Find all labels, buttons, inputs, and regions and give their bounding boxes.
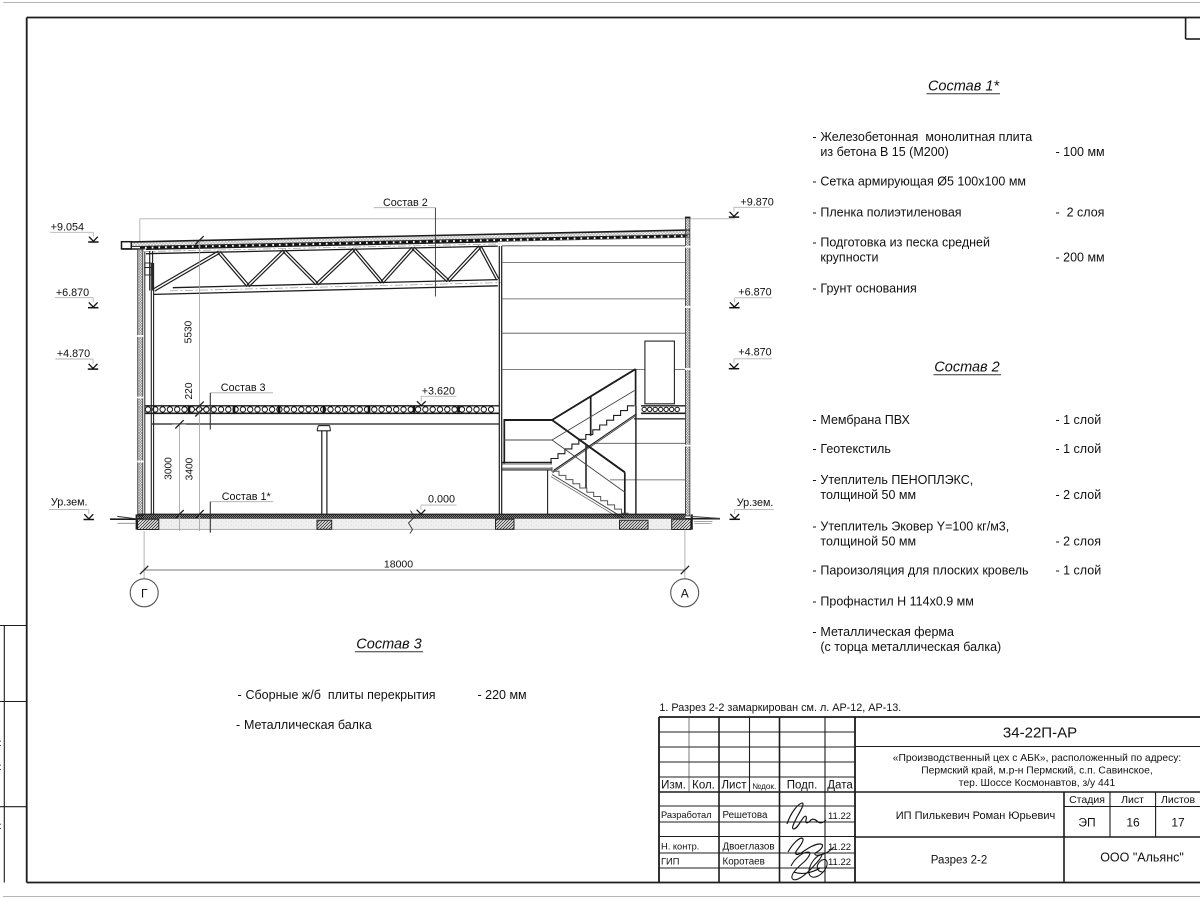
svg-text:Н. контр.: Н. контр. (661, 841, 699, 851)
svg-text:тер. Шоссе Космонавтов, з/у 44: тер. Шоссе Космонавтов, з/у 441 (959, 778, 1116, 789)
svg-text:Состав 2: Состав 2 (383, 197, 428, 209)
svg-text:Стадия: Стадия (1069, 794, 1105, 806)
svg-text:Разрез 2-2: Разрез 2-2 (931, 855, 987, 867)
svg-text:А: А (681, 586, 689, 600)
svg-text:толщиной 50 мм: толщиной 50 мм (820, 535, 916, 549)
svg-text:34-22П-АР: 34-22П-АР (1003, 725, 1077, 742)
svg-text:Лист: Лист (1121, 794, 1144, 806)
svg-text:(с торца металлическая балка): (с торца металлическая балка) (820, 640, 1001, 654)
svg-text:-: - (812, 442, 816, 456)
svg-text:Состав 3: Состав 3 (221, 382, 266, 394)
svg-text:- 220 мм: - 220 мм (478, 688, 527, 702)
svg-text:+9.870: +9.870 (740, 197, 773, 209)
svg-text:- 1 слой: - 1 слой (1056, 413, 1102, 427)
svg-text:Сборные ж/б плиты перекрытия: Сборные ж/б плиты перекрытия (246, 688, 436, 702)
svg-text:Инв. № подл.: Инв. № подл. (0, 815, 2, 874)
svg-text:«Производственный цех с АБК»,: «Производственный цех с АБК», расположен… (893, 753, 1182, 764)
svg-text:+6.870: +6.870 (738, 286, 771, 298)
svg-text:ГИП: ГИП (661, 856, 679, 866)
svg-text:ЭП: ЭП (1078, 816, 1095, 830)
svg-text:Листов: Листов (1161, 794, 1196, 806)
svg-text:0.000: 0.000 (428, 494, 455, 506)
svg-text:5530: 5530 (184, 320, 195, 343)
svg-text:-: - (812, 174, 816, 188)
svg-text:- 100 мм: - 100 мм (1056, 145, 1105, 159)
svg-text:из бетона В 15 (М200): из бетона В 15 (М200) (820, 145, 948, 159)
svg-text:крупности: крупности (820, 251, 878, 265)
svg-text:- 2 слоя: - 2 слоя (1056, 535, 1101, 549)
svg-text:+9.054: +9.054 (51, 221, 84, 233)
svg-text:Металлическая балка: Металлическая балка (244, 718, 372, 732)
svg-text:-: - (236, 718, 240, 732)
svg-text:Сетка армирующая Ø5 100х100 мм: Сетка армирующая Ø5 100х100 мм (820, 174, 1026, 188)
svg-text:+4.870: +4.870 (57, 348, 90, 360)
svg-text:Профнастил Н 114х0.9 мм: Профнастил Н 114х0.9 мм (820, 595, 973, 609)
svg-text:-: - (812, 595, 816, 609)
svg-text:Утеплитель ПЕНОПЛЭКС,: Утеплитель ПЕНОПЛЭКС, (820, 473, 973, 487)
svg-text:11.22: 11.22 (828, 811, 851, 822)
svg-text:+4.870: +4.870 (738, 347, 771, 359)
svg-text:ИП Пилькевич Роман Юрьевич: ИП Пилькевич Роман Юрьевич (896, 810, 1055, 822)
svg-text:Пароизоляция для плоских крове: Пароизоляция для плоских кровель (820, 564, 1028, 578)
svg-text:Пермский край, м.р-н Пермский,: Пермский край, м.р-н Пермский, с.п. Сави… (921, 766, 1152, 777)
svg-text:17: 17 (1171, 816, 1185, 830)
svg-text:Двоеглазов: Двоеглазов (723, 841, 775, 852)
svg-text:16: 16 (1126, 816, 1140, 830)
svg-text:№док.: №док. (752, 782, 776, 791)
svg-text:-: - (812, 130, 816, 144)
svg-text:+6.870: +6.870 (56, 287, 89, 299)
svg-text:-: - (812, 206, 816, 220)
svg-text:Коротаев: Коротаев (723, 856, 765, 867)
svg-text:Разработал: Разработал (661, 810, 712, 820)
svg-text:11.22: 11.22 (828, 857, 851, 868)
svg-text:- 1 слой: - 1 слой (1056, 442, 1102, 456)
svg-text:- 2 слоя: - 2 слоя (1056, 206, 1105, 220)
svg-text:Лист: Лист (722, 779, 748, 791)
svg-text:Подп.: Подп. (787, 779, 818, 791)
svg-text:Подп. и дата: Подп. и дата (0, 725, 2, 782)
svg-text:Изм.: Изм. (661, 779, 686, 791)
svg-text:18000: 18000 (384, 558, 413, 570)
svg-text:Геотекстиль: Геотекстиль (820, 442, 890, 456)
svg-text:Состав 1*: Состав 1* (222, 491, 272, 503)
svg-text:Ур.зем.: Ур.зем. (51, 497, 88, 509)
svg-text:3000: 3000 (163, 457, 174, 480)
svg-text:Железобетонная монолитная пли: Железобетонная монолитная плита (820, 130, 1032, 144)
svg-text:11.22: 11.22 (828, 842, 851, 853)
svg-text:- 2 слой: - 2 слой (1056, 488, 1102, 502)
svg-text:220: 220 (184, 382, 195, 399)
svg-text:-: - (812, 625, 816, 639)
svg-text:Состав 3: Состав 3 (356, 637, 421, 653)
svg-text:Состав 1*: Состав 1* (928, 79, 1000, 95)
svg-text:Мембрана ПВХ: Мембрана ПВХ (820, 413, 910, 427)
svg-text:толщиной 50 мм: толщиной 50 мм (820, 488, 916, 502)
svg-text:Г: Г (141, 586, 148, 600)
svg-text:-: - (238, 688, 242, 702)
svg-text:- 200 мм: - 200 мм (1056, 251, 1105, 265)
svg-text:Ур.зем.: Ур.зем. (737, 497, 774, 509)
svg-text:3400: 3400 (184, 457, 195, 480)
svg-text:Состав 2: Состав 2 (934, 360, 999, 376)
svg-text:Грунт основания: Грунт основания (820, 281, 916, 295)
svg-text:Кол.: Кол. (692, 779, 715, 791)
svg-text:-: - (812, 413, 816, 427)
svg-text:- 1 слой: - 1 слой (1056, 564, 1102, 578)
svg-text:Решетова: Решетова (723, 810, 768, 821)
svg-text:Утеплитель Эковер Y=100 кг/м3,: Утеплитель Эковер Y=100 кг/м3, (820, 520, 1009, 534)
svg-text:Металлическая ферма: Металлическая ферма (820, 625, 954, 639)
svg-text:-: - (812, 520, 816, 534)
svg-text:-: - (812, 564, 816, 578)
svg-text:Взам. инв. №: Взам. инв. № (0, 634, 2, 693)
svg-text:Пленка полиэтиленовая: Пленка полиэтиленовая (820, 206, 961, 220)
svg-text:-: - (812, 236, 816, 250)
svg-text:1. Разрез 2-2 замаркирован см.: 1. Разрез 2-2 замаркирован см. л. АР-12,… (659, 702, 901, 714)
svg-text:-: - (812, 473, 816, 487)
svg-text:-: - (812, 281, 816, 295)
svg-text:Дата: Дата (827, 779, 853, 791)
svg-text:ООО "Альянс": ООО "Альянс" (1100, 851, 1184, 865)
svg-text:Подготовка из песка средней: Подготовка из песка средней (820, 236, 990, 250)
